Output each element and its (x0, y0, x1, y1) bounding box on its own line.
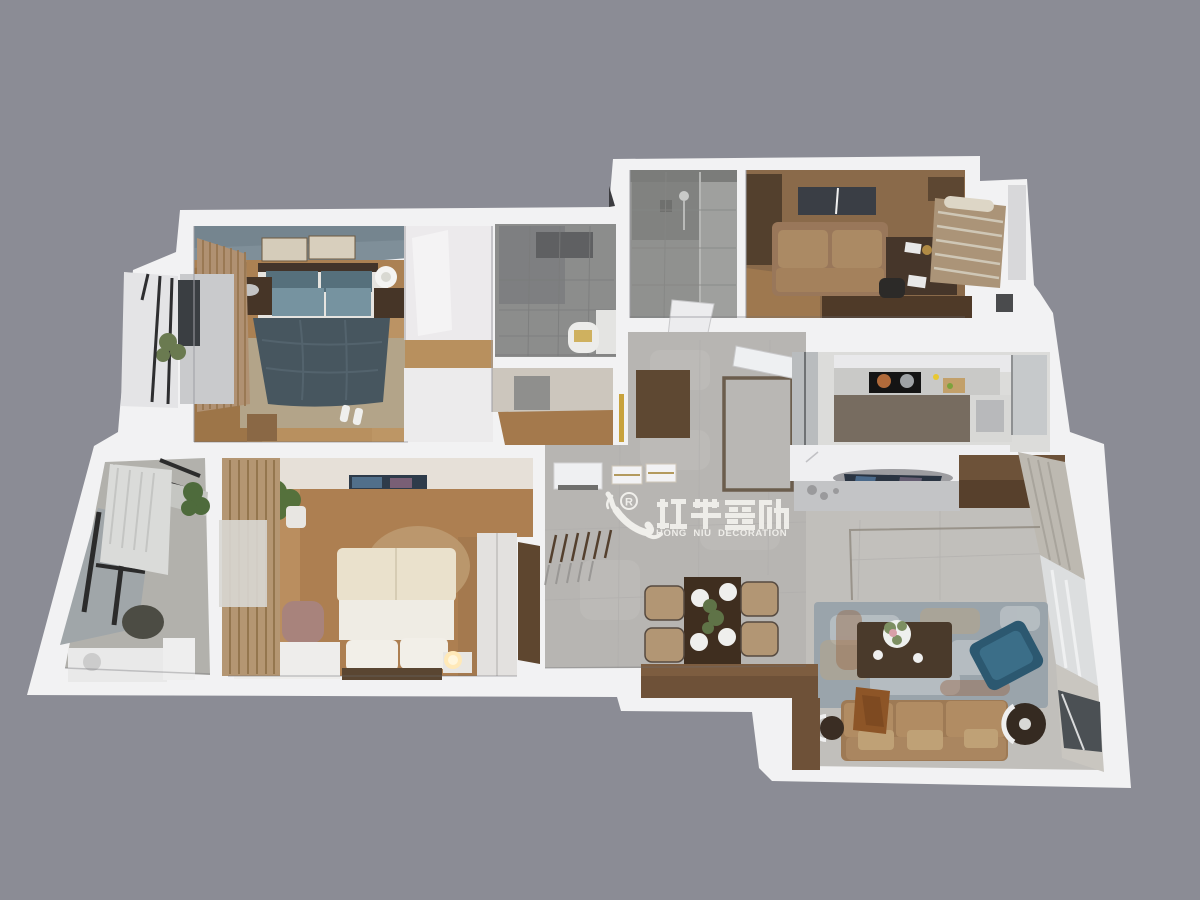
svg-text:R: R (625, 497, 633, 509)
svg-text:HONG NIU DECORATION: HONG NIU DECORATION (656, 528, 787, 539)
